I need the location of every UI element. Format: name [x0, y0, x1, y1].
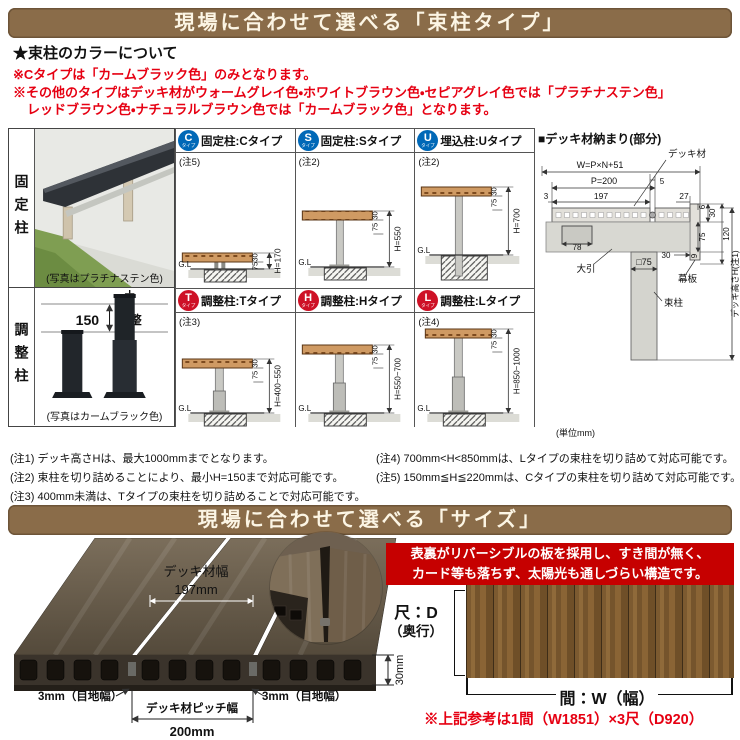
type-c-header: Cタイプ 固定柱:Cタイプ [176, 129, 295, 153]
total-height-dim: 120 [722, 227, 731, 241]
color-note-1: ※Cタイプは「カームブラック色」のみとなります。 [13, 64, 316, 83]
width-formula: W=P×N+51 [577, 160, 624, 170]
type-l-diagram: G.L 30 75 H=850~1000 [415, 313, 534, 427]
type-s-header: Sタイプ 固定柱:Sタイプ [296, 129, 415, 153]
deck-width-label: デッキ材幅 [163, 564, 228, 579]
board-width-dim: 197 [594, 191, 608, 201]
footing [442, 256, 488, 280]
reversible-feature-banner: 表裏がリバーシブルの板を採用し、すき間が無く、 カード等も落ちず、太陽光も通しづ… [386, 543, 734, 585]
feature-line-2: カード等も落ちず、太陽光も通しづらい構造です。 [386, 564, 734, 584]
type-s-diagram: G.L 30 75 H=550 [296, 153, 415, 288]
footnote-2: (注2) 束柱を切り詰めることにより、最小H=150まで対応可能です。 [10, 469, 343, 485]
type-panel-u: Uタイプ 埋込柱:Uタイプ (注2) G.L 30 75 H=700 [415, 129, 534, 288]
fastener-icon [650, 212, 656, 218]
footing [324, 414, 366, 426]
svg-text:30: 30 [370, 211, 379, 219]
svg-text:75: 75 [250, 371, 259, 379]
gl-label: G.L [418, 404, 431, 413]
fascia-offset-dim: 30 [662, 251, 671, 260]
width-bracket-line-right [658, 694, 733, 696]
svg-text:30: 30 [370, 345, 379, 353]
adjust-post-diagram: 150 調整 (写真はカームブラック色) [35, 288, 174, 425]
gl-label: G.L [178, 404, 191, 413]
support-post [336, 220, 343, 267]
support-post-upper [335, 354, 343, 386]
svg-text:30: 30 [250, 359, 259, 367]
color-note-3: レッドブラウン色・ナチュラルブラウン色では「カームブラック色」となります。 [27, 99, 497, 118]
pitch-width-value: 200mm [170, 724, 215, 739]
joist-height-dim: 75 [698, 232, 707, 241]
type-h-header: Hタイプ 調整柱:Hタイプ [296, 289, 415, 313]
footing [324, 268, 366, 280]
footing [204, 270, 246, 282]
post-photo-column: 固定柱 (写真はプラチナステン色) 調整柱 150 [8, 128, 175, 427]
deck-section-diagram: デッキ材 W=P×N+51 P=200 5 3 197 27 78 □75 大 [538, 146, 740, 440]
deck-height-label: デッキ高さH(注1) [730, 250, 740, 318]
svg-text:75: 75 [370, 357, 379, 365]
short-post [52, 330, 92, 398]
detail-diagram-title: ■デッキ材納まり(部分) [538, 130, 661, 147]
banner-size: 現場に合わせて選べる「サイズ」 [8, 505, 732, 535]
type-c-badge-icon: Cタイプ [178, 130, 199, 151]
deck-width-value: 197mm [174, 582, 217, 597]
type-c-diagram: G.L 30 75 H=170 [176, 153, 295, 288]
svg-text:75: 75 [250, 262, 259, 270]
pitch-dim: P=200 [591, 176, 617, 186]
deck-board [426, 329, 492, 338]
joist-label: 大引 [576, 263, 595, 275]
support-post-upper [215, 368, 223, 393]
fixed-post-cell: 固定柱 (写真はプラチナステン色) [9, 129, 174, 287]
svg-text:30: 30 [490, 187, 499, 195]
type-h-badge-icon: Hタイプ [298, 290, 319, 311]
edge-dim: 3 [544, 192, 549, 201]
type-panel-l: Lタイプ 調整柱:Lタイプ (注4) G.L 30 75 H=850~100 [415, 289, 534, 427]
lip-dim: 9 [690, 253, 699, 258]
banner-post-type: 現場に合わせて選べる「束柱タイプ」 [8, 8, 732, 38]
type-l-header: Lタイプ 調整柱:Lタイプ [415, 289, 534, 313]
type-t-header: Tタイプ 調整柱:Tタイプ [176, 289, 295, 313]
type-h-diagram: G.L 30 75 H=550~700 [296, 313, 415, 427]
joint-width-right: 3mm（目地幅） [262, 689, 346, 703]
dimension-lines [493, 187, 514, 255]
adjust-post-label: 調整柱 [9, 288, 35, 425]
gl-label: G.L [298, 258, 311, 267]
gl-label: G.L [178, 260, 191, 269]
footnote-4: (注4) 700mm<H<850mmは、Lタイプの束柱を切り詰めて対応可能です。 [376, 450, 734, 466]
support-post [456, 196, 463, 276]
width-bracket-tick-right [731, 678, 733, 695]
width-label: 間：W（幅） [552, 685, 662, 709]
gap-dim: 5 [660, 177, 665, 186]
joint-width-left: 3mm（目地幅） [38, 689, 122, 703]
adjust-post-cell: 調整柱 150 調整 [9, 287, 174, 425]
width-bracket-line-left [466, 694, 556, 696]
clip-connector [320, 618, 330, 626]
joist-width-dim: 78 [573, 243, 582, 252]
clip-connector [128, 662, 136, 676]
support-post-section [631, 252, 657, 360]
deck-board [422, 187, 492, 196]
deck-board [182, 359, 252, 368]
support-post-lower [453, 377, 465, 413]
gl-label: G.L [418, 246, 431, 255]
footnote-5: (注5) 150mm≦H≦220mmは、Cタイプの束柱を切り詰めて対応可能です。 [376, 469, 740, 485]
svg-text:75: 75 [490, 341, 499, 349]
depth-label: 尺：D （奥行） [382, 604, 450, 641]
gl-label: G.L [298, 404, 311, 413]
type-panel-c: Cタイプ 固定柱:Cタイプ (注5) G.L 30 75 H=170 [176, 129, 295, 288]
board-thickness-dim: 30 [708, 208, 717, 217]
unit-note: (単位mm) [556, 427, 595, 438]
svg-text:30: 30 [490, 329, 499, 337]
svg-text:30: 30 [250, 253, 259, 261]
end-dim: 27 [679, 191, 689, 201]
post-size-dim: □75 [636, 257, 651, 267]
fascia-board [690, 204, 700, 260]
height-dim: H=550~700 [393, 358, 402, 400]
height-dim: H=700 [512, 208, 522, 234]
height-dim: H=400~550 [273, 365, 282, 407]
fixed-post-caption: (写真はプラチナステン色) [35, 270, 174, 285]
footnote-1: (注1) デッキ高さHは、最大1000mmまでとなります。 [10, 450, 274, 466]
type-u-badge-icon: Uタイプ [417, 130, 438, 151]
thickness-dim: 30mm [394, 655, 406, 686]
post-label: 束柱 [664, 297, 684, 309]
type-h-title: 調整柱:Hタイプ [321, 293, 402, 309]
color-section-heading: ★束柱のカラーについて [13, 42, 178, 63]
fixed-post-label: 固定柱 [9, 129, 35, 287]
svg-text:75: 75 [370, 223, 379, 231]
type-c-title: 固定柱:Cタイプ [201, 133, 282, 149]
type-l-badge-icon: Lタイプ [417, 290, 438, 311]
depth-bracket [454, 590, 465, 676]
deck-board [182, 253, 252, 262]
footing [444, 414, 486, 426]
type-u-diagram: G.L 30 75 H=700 [415, 153, 534, 288]
post-type-grid: Cタイプ 固定柱:Cタイプ (注5) G.L 30 75 H=170 [175, 128, 535, 427]
type-s-title: 固定柱:Sタイプ [321, 133, 402, 149]
type-panel-h: Hタイプ 調整柱:Hタイプ G.L 30 75 H=550~700 [296, 289, 415, 427]
footnote-3: (注3) 400mm未満は、Tタイプの束柱を切り詰めることで対応可能です。 [10, 488, 365, 504]
type-panel-t: Tタイプ 調整柱:Tタイプ (注3) G.L 30 75 H=400~550 [176, 289, 295, 427]
adjust-range-value: 150 [76, 312, 100, 328]
type-s-badge-icon: Sタイプ [298, 130, 319, 151]
adjust-post-caption: (写真はカームブラック色) [35, 408, 174, 423]
height-dim: H=850~1000 [513, 347, 522, 394]
height-dim: H=550 [392, 226, 402, 252]
type-t-diagram: G.L 30 75 H=400~550 [176, 313, 295, 427]
deck-front-face [14, 655, 376, 691]
board-joint-closeup [270, 532, 382, 644]
width-bracket-tick-left [466, 678, 468, 695]
type-t-badge-icon: Tタイプ [178, 290, 199, 311]
type-panel-s: Sタイプ 固定柱:Sタイプ (注2) G.L 30 75 H=550 [296, 129, 415, 288]
support-post-lower [333, 383, 345, 413]
height-dim: H=170 [272, 248, 282, 274]
fixed-post-photo: (写真はプラチナステン色) [35, 129, 174, 287]
fascia-label: 幕板 [678, 273, 698, 285]
type-t-title: 調整柱:Tタイプ [201, 293, 281, 309]
deck-top-view [466, 585, 734, 678]
pitch-width-label: デッキ材ピッチ幅 [146, 701, 238, 715]
type-u-title: 埋込柱:Uタイプ [440, 133, 521, 149]
board-joint-illustration [270, 532, 380, 642]
type-l-title: 調整柱:Lタイプ [440, 293, 520, 309]
type-u-header: Uタイプ 埋込柱:Uタイプ [415, 129, 534, 153]
svg-text:75: 75 [490, 199, 499, 207]
reversible-lip-dim: 6 [698, 204, 707, 209]
footing [204, 414, 246, 426]
size-reference-note: ※上記参考は1間（W1851）×3尺（D920） [424, 708, 703, 729]
deck-boards-section [552, 208, 690, 222]
deck-board [302, 211, 372, 220]
deck-material-label: デッキ材 [668, 148, 707, 160]
adjust-post-illustration: 150 調整 [35, 288, 174, 402]
fixed-post-illustration [35, 129, 174, 287]
support-post-upper [455, 338, 463, 380]
clip-connector [249, 662, 257, 676]
feature-line-1: 表裏がリバーシブルの板を採用し、すき間が無く、 [386, 544, 734, 564]
spec-sheet-page: { "colors":{"banner_brown":"#8a6c49","no… [0, 0, 740, 740]
support-post-lower [213, 391, 225, 413]
joist-profile [562, 226, 592, 244]
dimension-lines [373, 345, 394, 413]
deck-board [302, 345, 372, 354]
